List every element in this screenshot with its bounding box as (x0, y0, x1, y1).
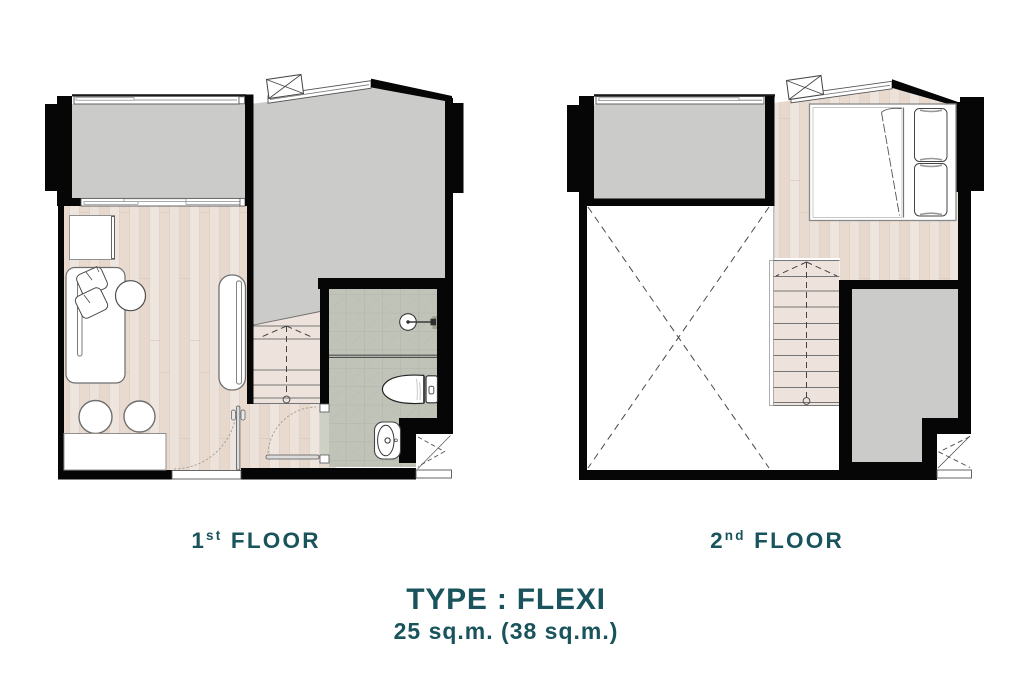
svg-text:TYPE : FLEXI: TYPE : FLEXI (406, 583, 606, 616)
svg-text:25 sq.m. (38 sq.m.): 25 sq.m. (38 sq.m.) (394, 618, 619, 644)
